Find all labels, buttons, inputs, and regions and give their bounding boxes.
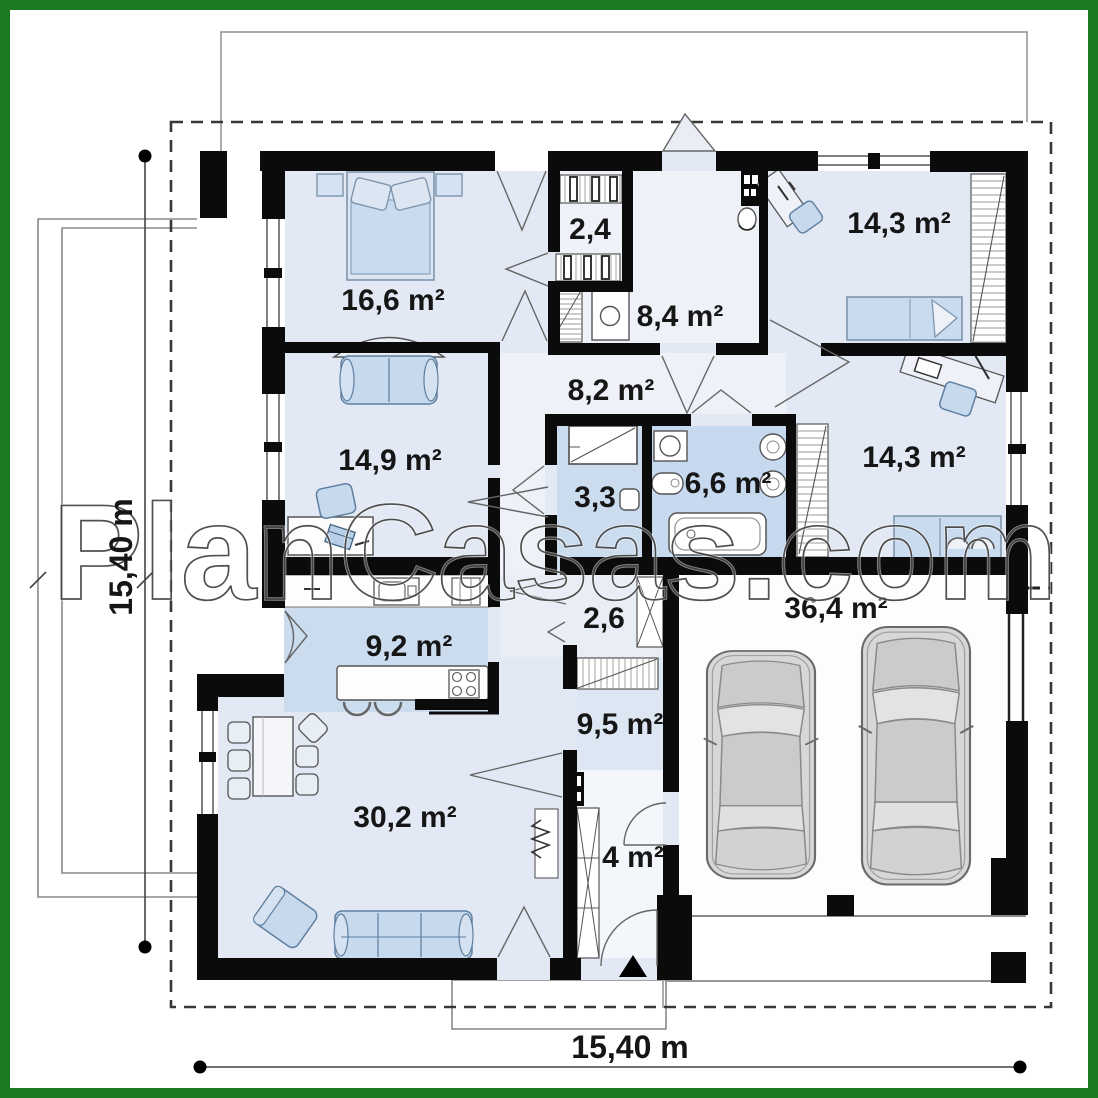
svg-text:8,4 m²: 8,4 m²: [637, 300, 724, 333]
svg-text:15,40 m: 15,40 m: [571, 1029, 688, 1065]
svg-text:8,2 m²: 8,2 m²: [568, 374, 655, 407]
svg-text:30,2 m²: 30,2 m²: [353, 801, 456, 834]
svg-text:14,3 m²: 14,3 m²: [847, 207, 950, 240]
svg-text:15,40 m: 15,40 m: [103, 498, 139, 615]
svg-text:9,5 m²: 9,5 m²: [577, 708, 664, 741]
svg-text:16,6 m²: 16,6 m²: [341, 284, 444, 317]
svg-text:14,9 m²: 14,9 m²: [338, 444, 441, 477]
svg-text:9,2 m²: 9,2 m²: [366, 630, 453, 663]
svg-text:2,4: 2,4: [569, 213, 611, 246]
svg-text:PlanCasas.com: PlanCasas.com: [52, 476, 1057, 628]
svg-text:4 m²: 4 m²: [602, 841, 664, 874]
svg-text:14,3 m²: 14,3 m²: [862, 441, 965, 474]
